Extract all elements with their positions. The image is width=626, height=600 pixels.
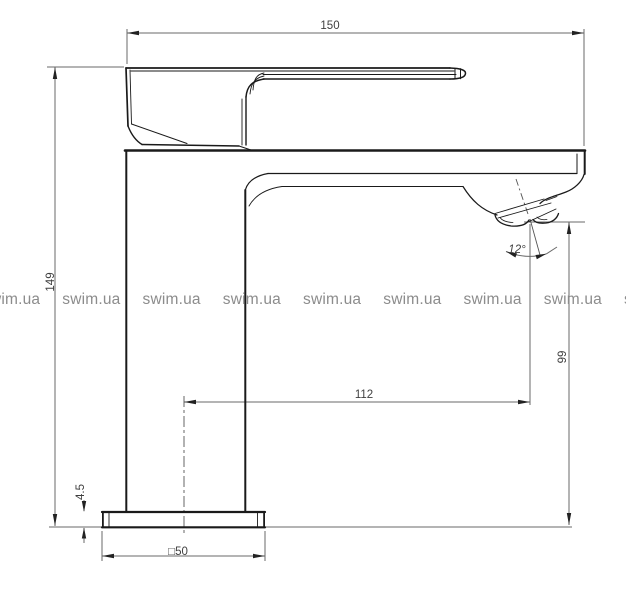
spray-centerline-solid <box>530 219 540 255</box>
arrow-149-top <box>53 67 57 79</box>
spout-end-molding <box>540 175 584 204</box>
arrow-4p5-down <box>82 501 86 512</box>
dimension-arrows <box>53 31 584 558</box>
arrow-112-right <box>518 400 530 404</box>
arrow-4p5-up <box>82 528 86 539</box>
faucet-drawing: 150 149 112 99 4.5 □50 12° <box>0 0 626 600</box>
label-spout-reach: 112 <box>355 389 373 401</box>
handle-base <box>126 68 251 150</box>
spout-body <box>125 151 585 512</box>
arrow-150-left <box>127 31 139 35</box>
handle-end-cap <box>450 68 466 79</box>
angle-arc-tail <box>547 247 558 254</box>
centerlines <box>184 179 540 533</box>
arrow-99-top <box>567 222 571 234</box>
label-spout-height: 99 <box>557 351 569 364</box>
arrow-149-bottom <box>53 514 57 526</box>
arrow-150-right <box>572 31 584 35</box>
arrow-50-right <box>253 554 265 558</box>
faucet-outline <box>102 68 585 527</box>
dimension-labels: 150 149 112 99 4.5 □50 12° <box>45 20 569 558</box>
label-base-size: □50 <box>168 546 188 558</box>
label-total-height: 149 <box>45 272 57 291</box>
arrow-angle-right <box>536 254 547 259</box>
label-spray-angle: 12° <box>508 244 526 256</box>
arrow-99-bottom <box>567 513 571 525</box>
label-total-width: 150 <box>320 20 339 32</box>
technical-drawing-canvas: 150 149 112 99 4.5 □50 12° swim.ua swim.… <box>0 0 626 600</box>
spout-fillet-outer <box>245 174 268 191</box>
arrow-112-left <box>184 400 196 404</box>
spout-underside-dip <box>463 187 497 216</box>
arrow-50-left <box>102 554 114 558</box>
label-base-thickness: 4.5 <box>75 484 87 500</box>
aerator-ring-line <box>495 199 544 214</box>
base-plate <box>102 512 265 527</box>
handle-lever <box>126 68 466 97</box>
spout-fillet-inner <box>249 187 282 207</box>
